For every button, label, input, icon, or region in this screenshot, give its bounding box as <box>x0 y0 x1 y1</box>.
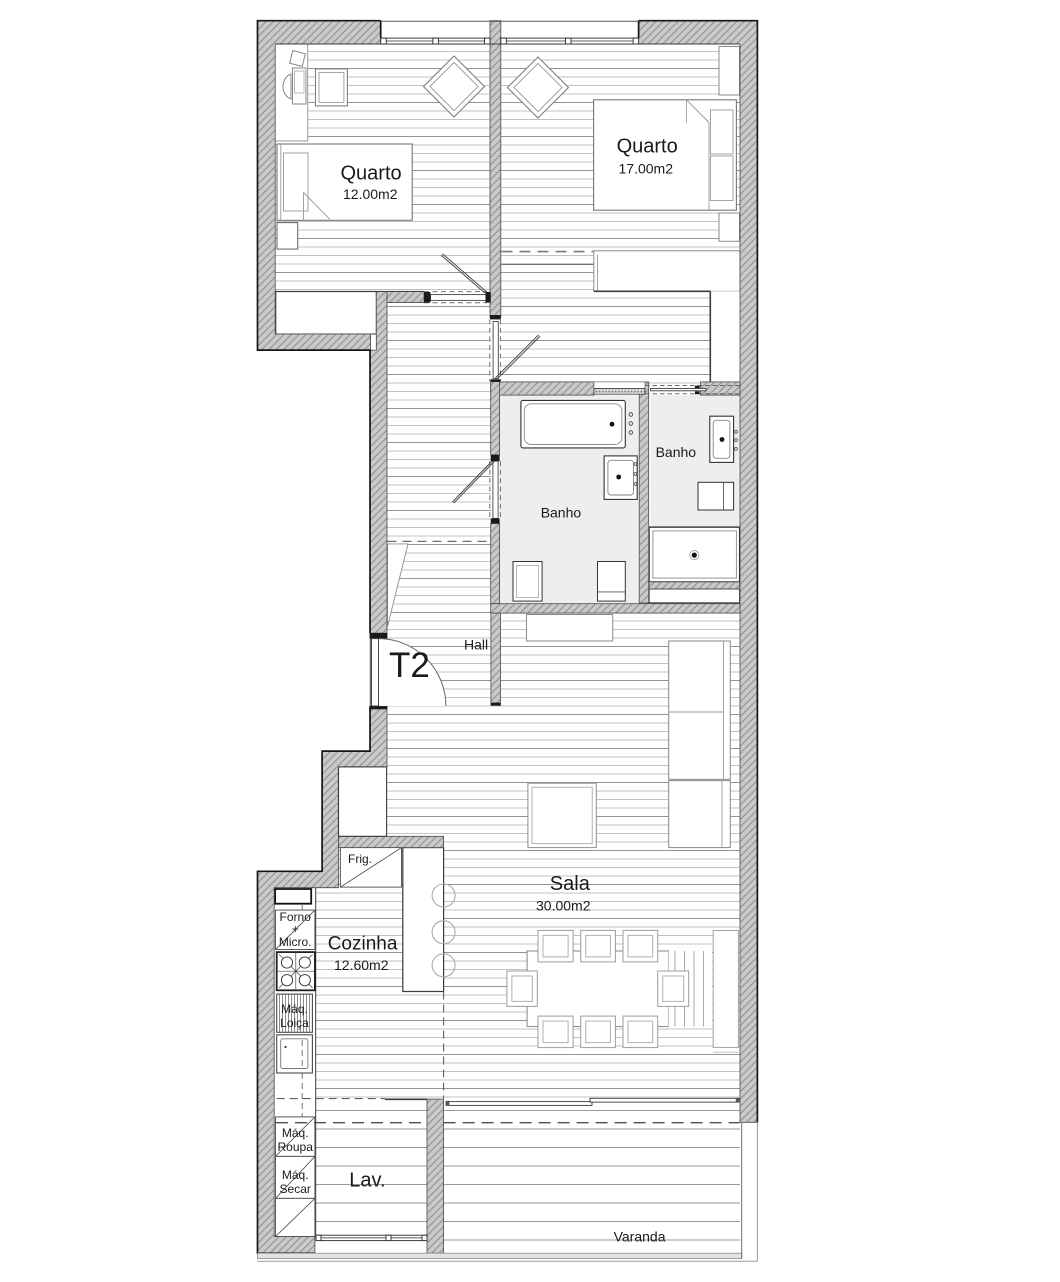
svg-text:Frig.: Frig. <box>348 852 372 866</box>
svg-text:Cozinha: Cozinha <box>328 934 398 955</box>
svg-text:Roupa: Roupa <box>278 1140 314 1154</box>
svg-text:Lav.: Lav. <box>349 1170 385 1192</box>
svg-text:Micro.: Micro. <box>279 935 312 949</box>
svg-text:Loiça: Loiça <box>280 1016 309 1030</box>
svg-text:Banho: Banho <box>656 444 697 460</box>
svg-text:Hall: Hall <box>464 637 488 653</box>
svg-text:Máq.: Máq. <box>282 1168 309 1182</box>
svg-text:30.00m2: 30.00m2 <box>536 898 591 914</box>
svg-text:Máq.: Máq. <box>281 1002 308 1016</box>
svg-text:Quarto: Quarto <box>341 163 402 185</box>
svg-text:Sala: Sala <box>550 873 591 895</box>
svg-text:Máq.: Máq. <box>282 1126 309 1140</box>
svg-text:Varanda: Varanda <box>614 1229 666 1245</box>
svg-text:Banho: Banho <box>541 505 582 521</box>
svg-text:T2: T2 <box>389 646 430 685</box>
svg-text:12.00m2: 12.00m2 <box>343 186 398 202</box>
svg-text:+: + <box>292 922 299 936</box>
svg-text:Secar: Secar <box>280 1182 311 1196</box>
svg-text:12.60m2: 12.60m2 <box>334 957 389 973</box>
svg-text:17.00m2: 17.00m2 <box>619 160 674 176</box>
svg-text:Quarto: Quarto <box>617 136 678 158</box>
